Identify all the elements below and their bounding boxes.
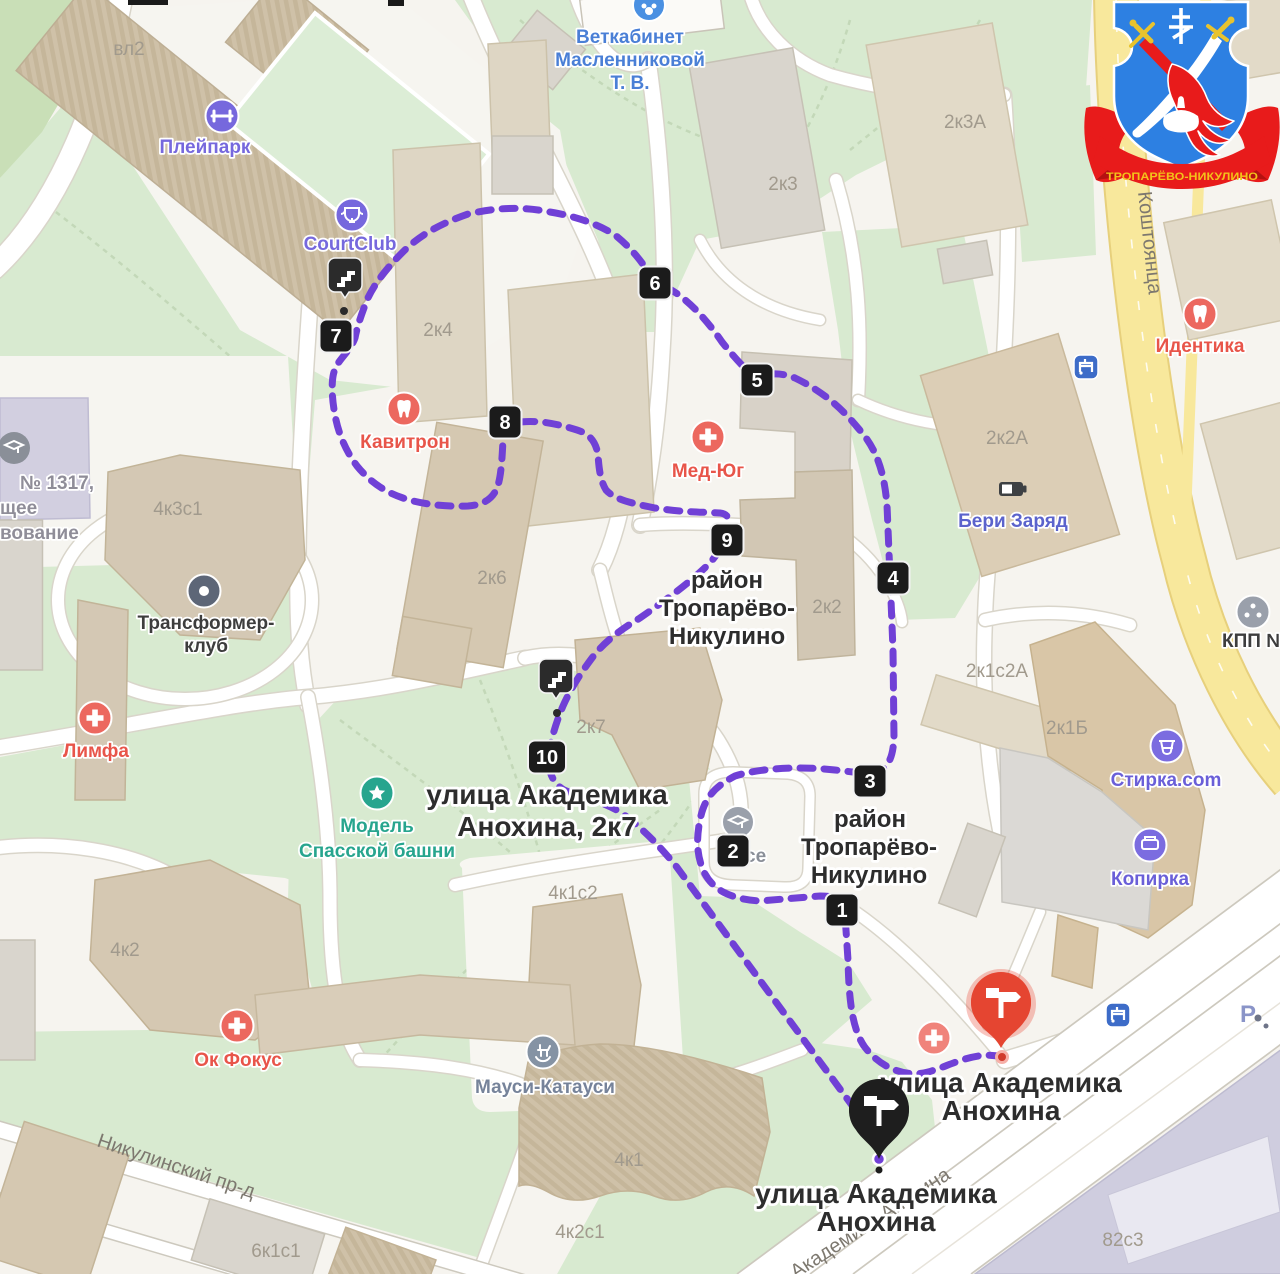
svg-text:КПП №1: КПП №1 (1222, 631, 1280, 652)
svg-text:1: 1 (836, 900, 847, 922)
svg-text:2к3А: 2к3А (944, 112, 986, 133)
svg-text:7: 7 (330, 326, 341, 348)
svg-text:Анохина, 2к7: Анохина, 2к7 (457, 811, 637, 842)
svg-text:2к7: 2к7 (576, 717, 605, 738)
svg-text:Копирка: Копирка (1111, 869, 1189, 890)
svg-text:Анохина: Анохина (942, 1095, 1061, 1126)
svg-text:6к1с1: 6к1с1 (251, 1241, 301, 1262)
svg-text:8: 8 (499, 412, 510, 434)
svg-text:CourtClub: CourtClub (304, 234, 397, 255)
svg-text:Мед-Юг: Мед-Юг (672, 461, 744, 482)
svg-text:Никулино: Никулино (669, 623, 785, 650)
svg-text:Никулино: Никулино (811, 862, 927, 889)
svg-text:Лимфа: Лимфа (63, 741, 129, 762)
svg-text:4к1с2: 4к1с2 (548, 883, 598, 904)
svg-text:Веткабинет: Веткабинет (576, 27, 684, 48)
svg-text:2к3: 2к3 (768, 174, 797, 195)
svg-text:2к6: 2к6 (477, 568, 506, 589)
svg-text:4к3с1: 4к3с1 (153, 499, 203, 520)
svg-text:6: 6 (649, 273, 660, 295)
svg-text:Спасской башни: Спасской башни (299, 841, 455, 862)
svg-text:10: 10 (536, 747, 558, 769)
svg-text:щее: щее (0, 498, 37, 519)
svg-text:9: 9 (721, 530, 732, 552)
svg-text:4: 4 (887, 568, 899, 590)
svg-text:Р: Р (1240, 1001, 1256, 1028)
svg-text:Кавитрон: Кавитрон (360, 432, 450, 453)
svg-text:2к2: 2к2 (812, 597, 841, 618)
svg-text:4к2с1: 4к2с1 (555, 1222, 605, 1243)
svg-text:4к1: 4к1 (614, 1150, 643, 1171)
svg-text:Мауси-Катауси: Мауси-Катауси (475, 1077, 615, 1098)
svg-text:Ок Фокус: Ок Фокус (194, 1050, 282, 1071)
svg-text:Масленниковой: Масленниковой (555, 50, 705, 71)
svg-text:2к1Б: 2к1Б (1046, 718, 1088, 739)
svg-text:Плейпарк: Плейпарк (160, 137, 251, 158)
svg-text:Стирка.com: Стирка.com (1111, 770, 1222, 791)
svg-text:2к4: 2к4 (423, 320, 453, 341)
svg-text:2к1с2А: 2к1с2А (966, 661, 1029, 682)
svg-text:2: 2 (727, 841, 738, 863)
svg-text:4к2: 4к2 (110, 940, 139, 961)
svg-text:2к2А: 2к2А (986, 428, 1028, 449)
svg-text:клуб: клуб (184, 636, 228, 657)
svg-text:Тропарёво-: Тропарёво- (801, 834, 937, 861)
svg-text:Идентика: Идентика (1156, 336, 1245, 357)
svg-text:82с3: 82с3 (1102, 1230, 1143, 1251)
svg-text:вование: вование (0, 523, 79, 544)
svg-text:3: 3 (864, 771, 875, 793)
svg-text:вл2: вл2 (113, 39, 144, 60)
svg-text:Бери Заряд: Бери Заряд (958, 511, 1068, 532)
svg-text:улица Академика: улица Академика (755, 1178, 997, 1209)
svg-text:№ 1317,: № 1317, (20, 473, 94, 494)
svg-text:район: район (834, 806, 906, 833)
svg-text:район: район (691, 567, 763, 594)
svg-text:Тропарёво-: Тропарёво- (659, 595, 795, 622)
svg-text:5: 5 (751, 370, 762, 392)
svg-text:Анохина: Анохина (817, 1206, 936, 1237)
svg-text:улица Академика: улица Академика (426, 779, 668, 810)
svg-text:ТРОПАРЁВО-НИКУЛИНО: ТРОПАРЁВО-НИКУЛИНО (1106, 170, 1258, 183)
svg-text:Т. В.: Т. В. (610, 73, 649, 94)
svg-text:Трансформер-: Трансформер- (138, 613, 275, 634)
svg-text:Модель: Модель (340, 816, 414, 837)
svg-text:улица Академика: улица Академика (880, 1067, 1122, 1098)
